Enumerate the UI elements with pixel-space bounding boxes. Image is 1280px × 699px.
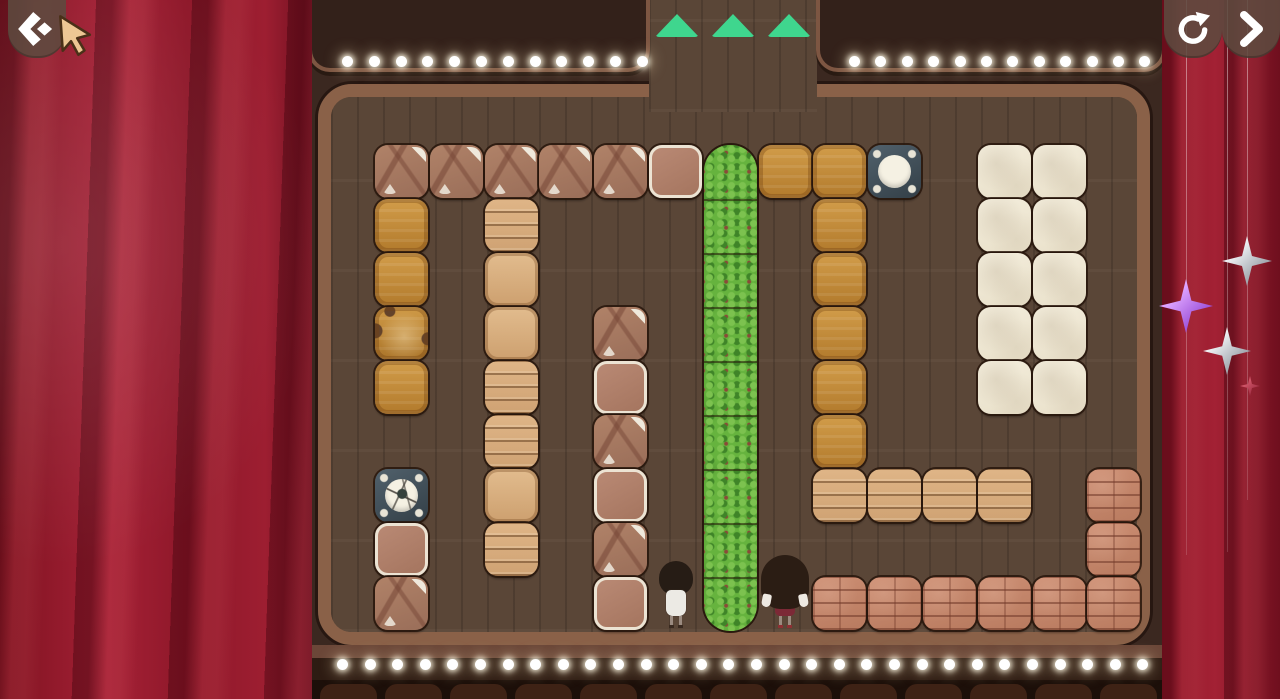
- light-bulb: [1055, 659, 1066, 670]
- light-bulb: [889, 659, 900, 670]
- light-bulb: [917, 659, 928, 670]
- mouse-cursor-icon: [54, 13, 97, 66]
- audience-seat: [905, 684, 962, 699]
- light-bulb: [342, 56, 353, 67]
- light-bulb: [610, 56, 621, 67]
- light-bulb: [834, 659, 845, 670]
- light-bulb: [641, 659, 652, 670]
- light-bulb: [613, 659, 624, 670]
- audience-seat: [1035, 684, 1092, 699]
- stage-front-dark-band: [300, 658, 1172, 680]
- audience-seat: [710, 684, 767, 699]
- light-bulb: [476, 56, 487, 67]
- chevron-right-icon: [1239, 11, 1263, 47]
- light-bulb: [503, 56, 514, 67]
- audience-seat: [515, 684, 572, 699]
- light-bulb: [1034, 56, 1045, 67]
- light-bulb: [1087, 56, 1098, 67]
- next-button[interactable]: [1222, 0, 1280, 58]
- light-bulb: [1110, 659, 1121, 670]
- light-bulb: [420, 659, 431, 670]
- chevron-left-diamond-icon: [18, 12, 56, 46]
- light-bulb: [972, 659, 983, 670]
- light-bulb: [696, 659, 707, 670]
- restart-icon: [1175, 11, 1211, 47]
- light-bulb: [779, 659, 790, 670]
- audience-seat: [840, 684, 897, 699]
- light-bulb: [849, 56, 860, 67]
- light-bulb: [751, 659, 762, 670]
- light-bulb: [1113, 56, 1124, 67]
- board-floor: [331, 97, 1137, 632]
- audience-seat: [580, 684, 637, 699]
- light-bulb: [981, 56, 992, 67]
- light-bulb: [369, 56, 380, 67]
- audience-seat: [970, 684, 1027, 699]
- light-bulb: [503, 659, 514, 670]
- audience-seat: [645, 684, 702, 699]
- light-bulb: [902, 56, 913, 67]
- light-bulb: [365, 659, 376, 670]
- light-bulb: [558, 659, 569, 670]
- level-progress-triangles: [649, 14, 817, 41]
- curtain-left: [0, 0, 312, 699]
- progress-triangle: [767, 14, 811, 37]
- light-bulb: [475, 659, 486, 670]
- light-bulb: [337, 659, 348, 670]
- light-bulb: [955, 56, 966, 67]
- light-bulb: [396, 56, 407, 67]
- light-bulb: [1027, 659, 1038, 670]
- progress-triangle: [711, 14, 755, 37]
- progress-triangle: [655, 14, 699, 37]
- audience-seat: [1100, 684, 1157, 699]
- audience-seat: [320, 684, 377, 699]
- audience-seat: [775, 684, 832, 699]
- audience-seat: [385, 684, 442, 699]
- curtain-right: [1162, 0, 1280, 699]
- stage-front-trim: [300, 645, 1172, 658]
- light-bulb: [637, 56, 648, 67]
- restart-button[interactable]: [1164, 0, 1222, 58]
- light-bulb: [530, 56, 541, 67]
- game-screen: [0, 0, 1280, 699]
- audience-seat: [450, 684, 507, 699]
